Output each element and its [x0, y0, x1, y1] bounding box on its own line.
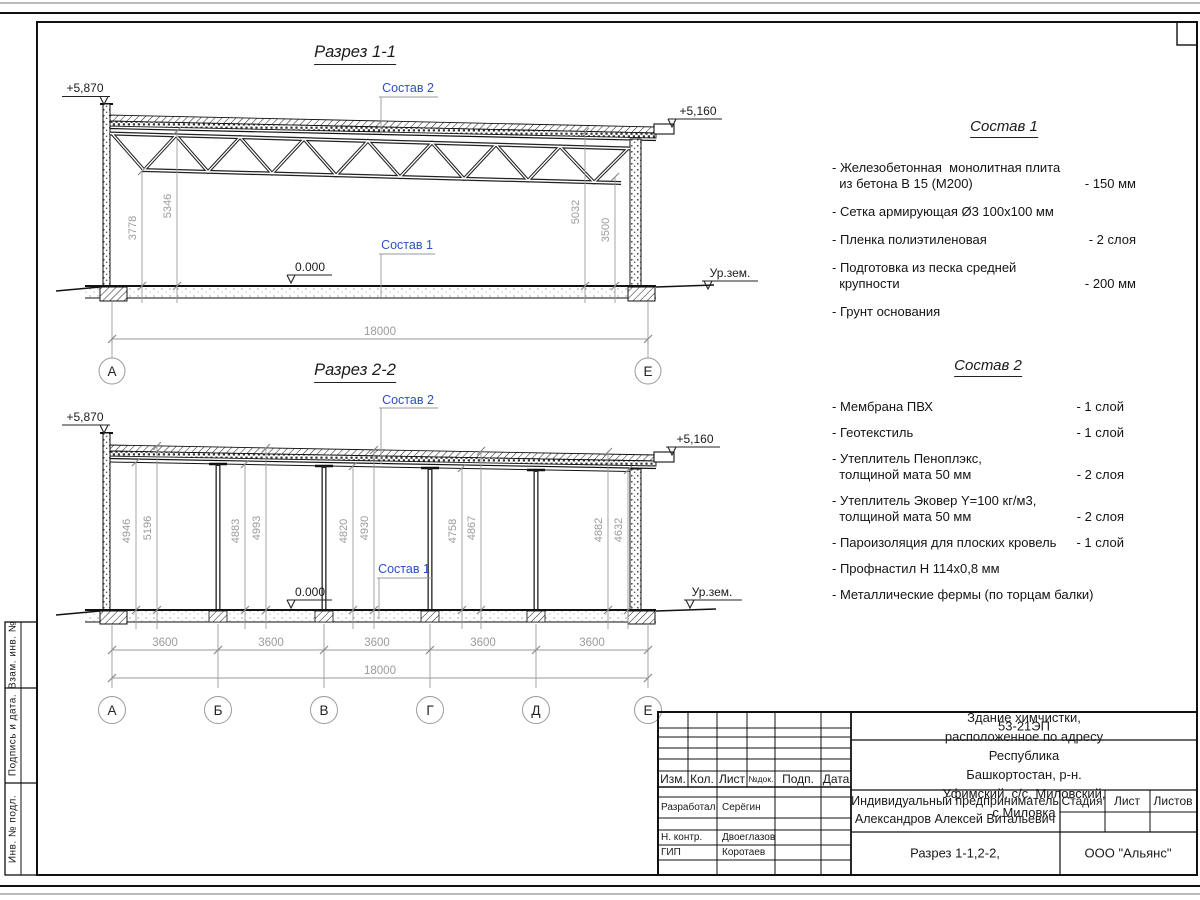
dimension-label: 3500: [600, 218, 612, 242]
elevation-mark-top-right: +5,160: [676, 432, 713, 446]
list-item: - Подготовка из песка средней крупности-…: [832, 260, 1136, 292]
dimension-label: 3778: [127, 216, 139, 240]
dimension-label: 3600: [579, 637, 605, 649]
dimension-label: 4758: [447, 519, 459, 543]
margin-cell-inv: Инв. № подл.: [8, 795, 19, 863]
axis-label: Е: [643, 703, 652, 718]
composition-2-list: - Мембрана ПВХ- 1 слой - Геотекстиль- 1 …: [832, 399, 1124, 613]
list-item: - Геотекстиль- 1 слой: [832, 425, 1124, 441]
list-item: - Мембрана ПВХ- 1 слой: [832, 399, 1124, 415]
axis-label: Е: [643, 364, 652, 379]
dimension-label: 4867: [466, 516, 478, 540]
stamp-sheet-header: Лист: [1114, 794, 1140, 808]
elevation-mark-top-left: +5,870: [66, 81, 103, 95]
dimension-label: 3600: [470, 637, 496, 649]
dimension-label: 4993: [251, 516, 263, 540]
dimension-label: 3600: [364, 637, 390, 649]
section-1-1-title: Разрез 1-1: [314, 43, 396, 65]
ground-level-label: Ур.зем.: [692, 585, 733, 599]
left-wall: [103, 433, 110, 610]
margin-cell-podpis: Подпись и дата.: [8, 694, 19, 776]
stamp-col-kol: Кол.: [690, 772, 714, 786]
stamp-role: Разработал: [661, 802, 715, 813]
dimension-label: 4946: [121, 519, 133, 543]
list-item: - Железобетонная монолитная плита из бет…: [832, 160, 1136, 192]
list-item: - Пленка полиэтиленовая- 2 слоя: [832, 232, 1136, 248]
dimension-label: 5196: [142, 516, 154, 540]
dimension-label: 4930: [359, 516, 371, 540]
right-wall: [630, 469, 641, 610]
stamp-sheet-title: Разрез 1-1,2-2,: [910, 846, 1000, 861]
composition-1-list: - Железобетонная монолитная плита из бет…: [832, 160, 1136, 332]
stamp-role-name: Серёгин: [722, 802, 761, 813]
stamp-role: ГИП: [661, 847, 681, 858]
dimension-label: 4883: [230, 519, 242, 543]
axis-label: В: [319, 703, 328, 718]
left-wall: [103, 104, 110, 287]
roof-truss: [110, 134, 630, 184]
dimension-label: 4820: [338, 519, 350, 543]
stamp-col-izm: Изм.: [660, 772, 686, 786]
dimension-label: 4632: [613, 518, 625, 542]
elevation-mark-zero: 0.000: [295, 585, 325, 599]
dimension-label: 5032: [570, 200, 582, 224]
list-item: - Грунт основания: [832, 304, 1136, 320]
dimension-label: 4882: [593, 518, 605, 542]
axis-label: Д: [531, 703, 540, 718]
list-item: - Сетка армирующая Ø3 100х100 мм: [832, 204, 1136, 220]
composition-2-title: Состав 2: [954, 357, 1022, 377]
stamp-role: Н. контр.: [661, 832, 702, 843]
dimension-label-total: 18000: [364, 665, 396, 677]
list-item: - Пароизоляция для плоских кровель- 1 сл…: [832, 535, 1124, 551]
dimension-label: 5346: [162, 194, 174, 218]
stamp-role-name: Коротаев: [722, 847, 765, 858]
axis-label: Г: [426, 703, 434, 718]
ground-level-label: Ур.зем.: [710, 266, 751, 280]
axis-label: А: [107, 703, 116, 718]
stamp-sheets-header: Листов: [1154, 794, 1193, 808]
sostav1-reference: Состав 1: [381, 238, 433, 252]
dimension-label: 3600: [152, 637, 178, 649]
list-item: - Металлические фермы (по торцам балки): [832, 587, 1124, 603]
foundation-block: [628, 287, 655, 301]
dimension-lines: [112, 131, 648, 358]
elevation-mark-top-left: +5,870: [66, 410, 103, 424]
list-item: - Утеплитель Пеноплэкс, толщиной мата 50…: [832, 451, 1124, 483]
stamp-stage-header: Стадия: [1062, 794, 1103, 808]
stamp-client: Индивидуальный предприниматель Александр…: [851, 792, 1059, 828]
stamp-role-name: Двоеглазов: [722, 832, 775, 843]
sostav1-reference: Состав 1: [378, 562, 430, 576]
margin-cell-vzam: Взам. инв. №: [8, 621, 19, 689]
dimension-label: 3600: [258, 637, 284, 649]
list-item: - Профнастил Н 114х0,8 мм: [832, 561, 1124, 577]
sostav2-reference: Состав 2: [382, 393, 434, 407]
sostav2-reference: Состав 2: [382, 81, 434, 95]
foundation-block: [100, 287, 127, 301]
stamp-col-data: Дата: [823, 772, 850, 786]
composition-1-title: Состав 1: [970, 118, 1038, 138]
elevation-mark-zero: 0.000: [295, 260, 325, 274]
section-2-2-title: Разрез 2-2: [314, 361, 396, 383]
stamp-col-podp: Подп.: [782, 772, 814, 786]
elevation-mark-top-right: +5,160: [679, 104, 716, 118]
stamp-col-ndok: №док.: [749, 774, 774, 784]
drawing-sheet: 3778 5346 5032 3500 18000 А Е: [0, 0, 1200, 900]
stamp-col-list: Лист: [719, 772, 745, 786]
right-wall: [630, 139, 641, 287]
list-item: - Утеплитель Эковер Y=100 кг/м3, толщино…: [832, 493, 1124, 525]
stamp-company: ООО "Альянс": [1085, 846, 1172, 861]
dimension-label-total: 18000: [364, 326, 396, 338]
axis-label: А: [107, 364, 116, 379]
axis-label: Б: [214, 703, 223, 718]
